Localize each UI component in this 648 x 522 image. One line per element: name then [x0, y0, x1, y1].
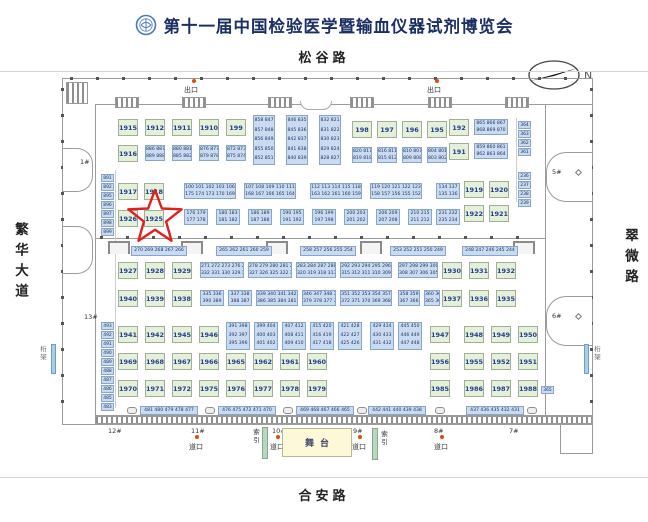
booth-486: 486	[101, 385, 114, 393]
booth-blue-cluster: 337 338388 387	[228, 290, 252, 306]
booth-blue-cluster: 335 336390 389	[200, 290, 224, 306]
wall-structure	[63, 226, 93, 274]
booth-1931: 1931	[469, 262, 489, 279]
booth-1979: 1979	[307, 380, 327, 397]
booth-489: 489	[101, 358, 114, 366]
booth-blue-cluster: 421 428422 427425 426	[338, 322, 362, 350]
wall-structure	[357, 407, 367, 414]
booth-1941: 1941	[118, 326, 138, 343]
booth-blue-cluster: 832 821831 822830 823829 824828 827	[319, 115, 341, 165]
booth-blue-cluster: 253 252 251 250 249	[390, 246, 446, 256]
booth-blue-cluster: 360 361365 362	[424, 290, 440, 306]
booth-1967: 1967	[172, 353, 192, 370]
wall-structure	[546, 152, 592, 202]
booth-1970: 1970	[118, 380, 138, 397]
booth-blue-cluster: 399 404400 403401 402	[254, 322, 278, 350]
booth-1960: 1960	[307, 353, 327, 370]
booth-blue-cluster: 407 412408 411409 410	[282, 322, 306, 350]
booth-896: 896	[101, 201, 114, 209]
booth-blue-cluster: 437 436 435 432 431	[466, 406, 524, 415]
wall-structure	[182, 97, 206, 108]
booth-1932: 1932	[496, 262, 516, 279]
hall-label-8: 8#	[434, 427, 444, 435]
booth-blue-cluster: 351 352 353 354 357372 371 370 369 368	[340, 290, 392, 306]
booth-199: 199	[226, 119, 246, 136]
booth-898: 898	[101, 219, 114, 227]
booth-1948: 1948	[464, 326, 484, 343]
booth-196: 196	[402, 121, 422, 138]
booth-blue-cluster: 200 203201 202	[344, 209, 368, 225]
wall-structure	[115, 170, 116, 408]
index-strip-label: 索引	[380, 431, 389, 446]
hall-label-11: 11#	[191, 427, 205, 435]
booth-1930: 1930	[442, 262, 462, 279]
booth-blue-cluster: 283 284 287 288 291320 319 318 317 316	[296, 262, 336, 278]
wall-structure	[527, 407, 537, 414]
wall-structure	[62, 424, 592, 425]
booth-blue-cluster: 429 434430 433431 432	[370, 322, 394, 350]
wall-structure	[560, 424, 561, 454]
booth-blue-cluster: 445 450446 449447 448	[398, 322, 422, 350]
booth-488: 488	[101, 367, 114, 375]
booth-1988: 1988	[518, 380, 538, 397]
booth-897: 897	[101, 210, 114, 218]
booth-197: 197	[377, 121, 397, 138]
booth-1910: 1910	[199, 119, 219, 136]
booth-1976: 1976	[226, 380, 246, 397]
booth-blue-cluster: 876 877879 878	[199, 145, 219, 161]
booth-1920: 1920	[489, 181, 509, 198]
wall-structure	[505, 97, 529, 108]
wall-structure	[350, 97, 374, 108]
booth-492: 492	[101, 331, 114, 339]
booth-1947: 1947	[430, 326, 450, 343]
booth-1985: 1985	[430, 380, 450, 397]
wall-structure	[127, 407, 137, 414]
booth-blue-cluster: 872 873875 874	[226, 145, 246, 161]
booth-491: 491	[101, 340, 114, 348]
booth-1971: 1971	[145, 380, 165, 397]
booth-blue-cluster: 846 835845 836842 837841 838840 839	[286, 115, 308, 165]
booth-1935: 1935	[496, 290, 516, 307]
booth-198: 198	[352, 121, 372, 138]
booth-1915: 1915	[118, 119, 138, 136]
booth-1942: 1942	[145, 326, 165, 343]
booth-1929: 1929	[172, 262, 192, 279]
booth-1939: 1939	[145, 290, 165, 307]
booth-blue-cluster: 176 179177 178	[184, 209, 208, 225]
crossing-dot-icon	[276, 435, 280, 439]
booth-blue-cluster: 112 113 114 115 118163 162 161 160 159	[310, 183, 362, 199]
booth-1921: 1921	[489, 205, 509, 222]
booth-1977: 1977	[253, 380, 273, 397]
booth-blue-cluster: 481 480 479 478 477	[140, 406, 198, 415]
hall-label-1: 1#	[80, 158, 90, 166]
hall-label-13: 13#	[84, 313, 98, 321]
highlight-star-icon	[125, 188, 185, 248]
booth-1975: 1975	[199, 380, 219, 397]
wall-structure	[435, 407, 445, 414]
booth-blue-cluster: 339 340 341 342 345386 385 384 381 380	[256, 290, 298, 306]
booth-236: 236	[518, 172, 531, 180]
booth-blue-cluster: 258 257 256 255 254	[300, 246, 356, 256]
booth-blue-cluster: 265 262 261 260 259	[216, 246, 272, 256]
booth-blue-cluster: 391 398392 397395 396	[226, 322, 250, 350]
booth-1946: 1946	[199, 326, 219, 343]
hall-label-5: 5#	[552, 168, 562, 176]
booth-362: 362	[518, 139, 531, 147]
booth-899: 899	[101, 228, 114, 236]
booth-1919: 1919	[464, 181, 484, 198]
booth-blue-cluster: 358 359367 366	[398, 290, 420, 306]
booth-1927: 1927	[118, 262, 138, 279]
index-strip-bar	[262, 427, 268, 459]
booth-blue-cluster: 804 801803 802	[427, 147, 447, 163]
booth-487: 487	[101, 376, 114, 384]
booth-1949: 1949	[491, 326, 511, 343]
booth-blue-cluster: 346 347 348 349 350379 378 377 376 375	[302, 290, 336, 306]
booth-blue-cluster: 810 807809 808	[402, 147, 422, 163]
booth-483: 483	[101, 403, 114, 411]
booth-blue-cluster: 886 887889 888	[145, 145, 165, 161]
wall-structure	[360, 241, 382, 254]
booth-1928: 1928	[145, 262, 165, 279]
booth-1969: 1969	[118, 353, 138, 370]
booth-364: 364	[518, 121, 531, 129]
booth-blue-cluster: 210 215211 212	[408, 209, 432, 225]
booth-blue-cluster: 196 199197 198	[312, 209, 336, 225]
booth-1937: 1937	[442, 290, 462, 307]
booth-1912: 1912	[145, 119, 165, 136]
wall-structure	[205, 407, 215, 414]
truss-bar	[51, 344, 56, 374]
wall-structure	[268, 97, 292, 108]
hall-label-9: 9#	[353, 427, 363, 435]
index-strip-label: 索引	[252, 429, 261, 444]
exit-label: 出口	[184, 85, 198, 95]
booth-blue-cluster: 190 195191 192	[280, 209, 304, 225]
exit-dot-icon	[192, 79, 196, 83]
booth-1952: 1952	[491, 353, 511, 370]
exit-label: 出口	[427, 85, 441, 95]
crossing-dot-icon	[195, 435, 199, 439]
wall-structure	[545, 104, 546, 416]
truss-label: 桁架	[593, 346, 602, 361]
wall-structure	[546, 296, 592, 346]
booth-blue-cluster: 816 811815 812	[377, 147, 397, 163]
stage-area: 舞台	[282, 428, 352, 457]
booth-1978: 1978	[280, 380, 300, 397]
booth-1962: 1962	[253, 353, 273, 370]
booth-1916: 1916	[118, 145, 138, 162]
booth-blue-cluster: 206 209207 208	[376, 209, 400, 225]
exit-dot-icon	[435, 79, 439, 83]
hall-label-12: 12#	[108, 427, 122, 435]
wall-structure	[70, 77, 586, 80]
booth-1966: 1966	[199, 353, 219, 370]
wall-structure	[283, 407, 293, 414]
booth-485: 485	[101, 394, 114, 402]
crossing-label: 道口	[352, 442, 366, 452]
booth-1951: 1951	[518, 353, 538, 370]
booth-1938: 1938	[172, 290, 192, 307]
crossing-label: 道口	[434, 442, 448, 452]
booth-blue-cluster: 186 189187 188	[248, 209, 272, 225]
booth-blue-cluster: 820 817819 818	[352, 147, 372, 163]
wall-structure	[63, 148, 93, 192]
booth-365: 365	[541, 386, 554, 394]
booth-490: 490	[101, 349, 114, 357]
crossing-dot-icon	[440, 435, 444, 439]
booth-1922: 1922	[464, 205, 484, 222]
booth-blue-cluster: 865 866 867868 869 870	[474, 119, 508, 135]
truss-label: 桁架	[39, 346, 48, 361]
booth-blue-cluster: 134 137135 136	[436, 183, 460, 199]
booth-891: 891	[101, 174, 114, 182]
booth-1965: 1965	[226, 353, 246, 370]
booth-blue-cluster: 415 420416 419417 418	[310, 322, 334, 350]
booth-blue-cluster: 100 101 102 103 106175 174 173 170 169	[184, 183, 236, 199]
booth-239: 239	[518, 199, 531, 207]
booth-1972: 1972	[172, 380, 192, 397]
wall-structure	[590, 88, 593, 418]
booth-1945: 1945	[172, 326, 192, 343]
floorplan-canvas: 第十一届中国检验医学暨输血仪器试剂博览会 松谷路 繁华大道 翠微路 合安路 N …	[0, 0, 648, 522]
booth-892: 892	[101, 183, 114, 191]
wall-structure	[560, 453, 593, 454]
booth-blue-cluster: 469 468 467 466 465	[296, 406, 354, 415]
wall-structure	[300, 101, 332, 110]
wall-structure	[95, 104, 96, 416]
booth-493: 493	[101, 322, 114, 330]
hall-label-6: 6#	[552, 312, 562, 320]
wall-structure	[115, 97, 139, 108]
wall-structure	[516, 118, 517, 202]
index-strip-bar	[372, 428, 378, 460]
wall-structure	[0, 71, 648, 72]
booth-895: 895	[101, 192, 114, 200]
wall-structure	[592, 424, 593, 454]
booth-1956: 1956	[430, 353, 450, 370]
booth-363: 363	[518, 130, 531, 138]
crossing-label: 道口	[189, 442, 203, 452]
booth-blue-cluster: 297 298 299 300 301308 307 306 305 302	[398, 262, 438, 278]
booth-237: 237	[518, 181, 531, 189]
booth-blue-cluster: 107 108 109 110 111168 167 166 165 164	[244, 183, 296, 199]
wall-structure	[95, 416, 592, 424]
booth-1968: 1968	[145, 353, 165, 370]
booth-blue-cluster: 278 279 280 281 282327 326 325 322 321	[248, 262, 292, 278]
booth-192: 192	[449, 119, 469, 136]
booth-1961: 1961	[280, 353, 300, 370]
booth-1955: 1955	[464, 353, 484, 370]
booth-blue-cluster: 476 475 472 471 470	[218, 406, 276, 415]
booth-1950: 1950	[518, 326, 538, 343]
booth-1911: 1911	[172, 119, 192, 136]
booth-1940: 1940	[118, 290, 138, 307]
booth-238: 238	[518, 190, 531, 198]
hall-label-7: 7#	[509, 427, 519, 435]
booth-blue-cluster: 292 293 294 295 296315 312 311 310 309	[340, 262, 392, 278]
crossing-dot-icon	[358, 435, 362, 439]
booth-blue-cluster: 859 860 861862 863 864	[474, 143, 508, 159]
booth-blue-cluster: 119 120 121 122 123158 157 156 155 152	[370, 183, 422, 199]
wall-structure	[66, 82, 88, 104]
booth-1936: 1936	[469, 290, 489, 307]
booth-blue-cluster: 248 247 246 245 244	[462, 246, 518, 256]
booth-blue-cluster: 231 232235 234	[436, 209, 460, 225]
booth-191: 191	[449, 143, 469, 160]
booth-1987: 1987	[491, 380, 511, 397]
wall-structure	[0, 477, 648, 478]
booth-blue-cluster: 442 441 440 439 438	[368, 406, 426, 415]
booth-blue-cluster: 858 847857 848856 849855 850852 851	[253, 115, 275, 165]
truss-bar	[584, 344, 589, 374]
booth-blue-cluster: 180 183181 182	[216, 209, 240, 225]
wall-structure	[428, 97, 452, 108]
exhibition-hall-map: 1915191219111910199191619819719619519219…	[0, 0, 648, 522]
booth-blue-cluster: 271 272 273 276 277332 331 330 329 328	[200, 262, 244, 278]
booth-1986: 1986	[464, 380, 484, 397]
booth-blue-cluster: 880 881885 882	[172, 145, 192, 161]
booth-361: 361	[518, 148, 531, 156]
booth-195: 195	[427, 121, 447, 138]
